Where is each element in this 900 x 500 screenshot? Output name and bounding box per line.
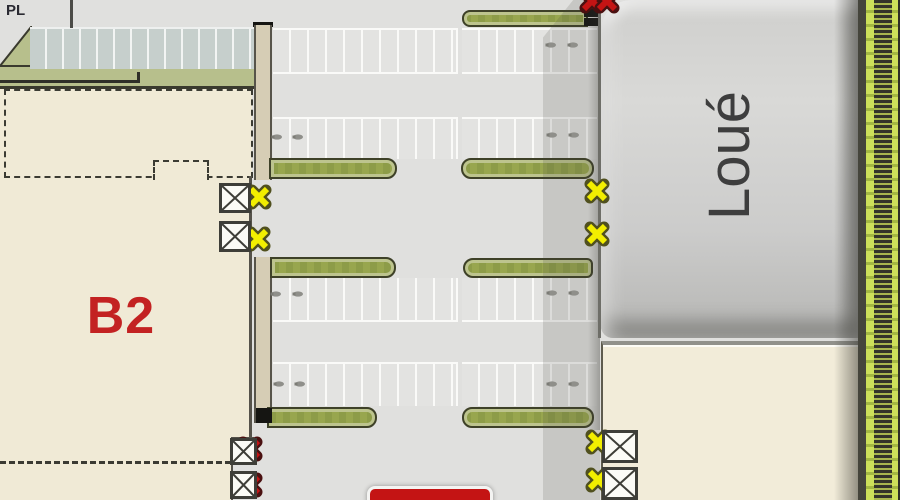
unit-b2-label: B2 <box>58 286 184 346</box>
parcel-right-border <box>249 176 252 437</box>
upper-dashed-zone <box>4 89 253 178</box>
canopy-strip <box>30 27 255 69</box>
hedge-line-icon <box>866 0 874 500</box>
green-band-line <box>0 80 140 83</box>
hedge-ticks-icon <box>874 0 892 500</box>
planter-strip <box>267 407 377 428</box>
loue-building[interactable]: Loué <box>601 0 858 338</box>
parking-row <box>273 28 458 74</box>
lower-building[interactable] <box>601 341 859 500</box>
site-plan: B2 PL Loué <box>0 0 900 500</box>
loue-label: Loué <box>696 90 763 219</box>
parking-row <box>273 278 458 322</box>
parcel-step <box>231 437 254 500</box>
lower-dashed-line <box>0 461 231 464</box>
strip-end-cap <box>256 408 272 423</box>
planter-strip <box>269 158 397 179</box>
red-label-box[interactable] <box>367 486 493 500</box>
hedge-shadow <box>834 0 860 500</box>
parking-row <box>273 117 458 159</box>
green-ramp-icon <box>0 26 34 68</box>
planter-strip <box>270 257 396 278</box>
dashed-outline-notch <box>153 160 209 180</box>
wall-upper <box>254 25 272 180</box>
wall-lower <box>254 257 272 423</box>
parking-row <box>273 362 458 406</box>
boundary-line <box>70 0 73 28</box>
green-band <box>0 66 256 89</box>
pl-label: PL <box>6 2 25 19</box>
green-band-line-vertical <box>137 72 140 83</box>
